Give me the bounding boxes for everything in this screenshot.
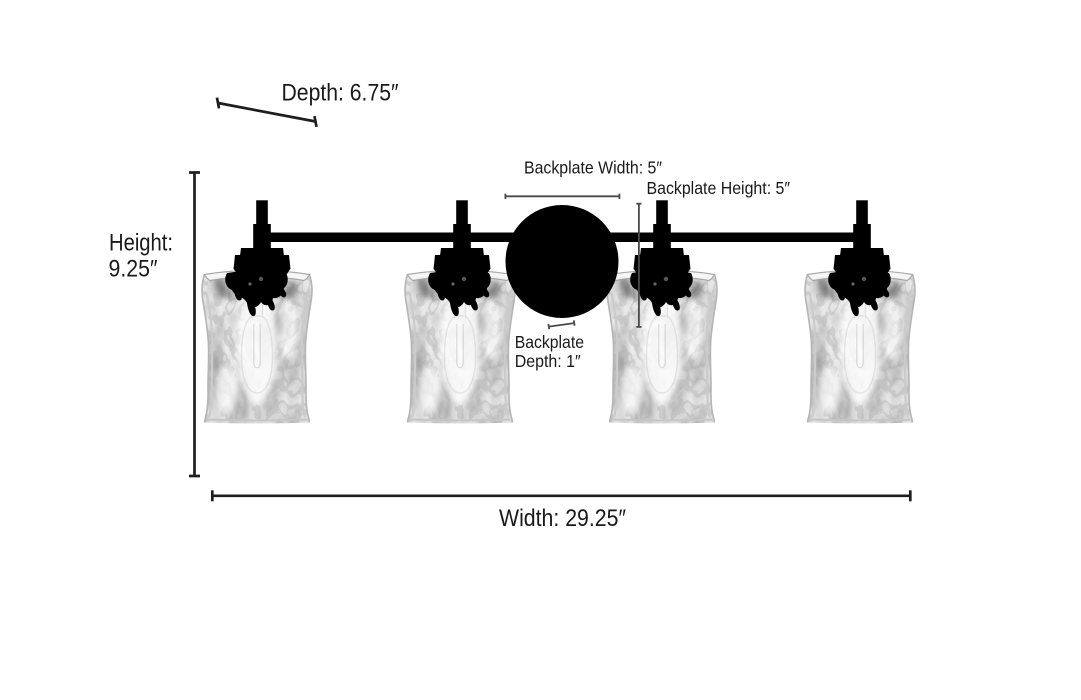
svg-text:Backplate Width: 5″: Backplate Width: 5″ <box>524 158 662 178</box>
svg-text:Backplate: Backplate <box>515 332 584 352</box>
svg-text:Backplate Height: 5″: Backplate Height: 5″ <box>647 178 791 198</box>
svg-text:Depth: 6.75″: Depth: 6.75″ <box>282 80 399 107</box>
svg-text:9.25″: 9.25″ <box>109 255 158 282</box>
svg-text:Depth: 1″: Depth: 1″ <box>515 351 581 371</box>
svg-text:Height:: Height: <box>109 230 173 257</box>
svg-text:Width: 29.25″: Width: 29.25″ <box>499 505 626 532</box>
